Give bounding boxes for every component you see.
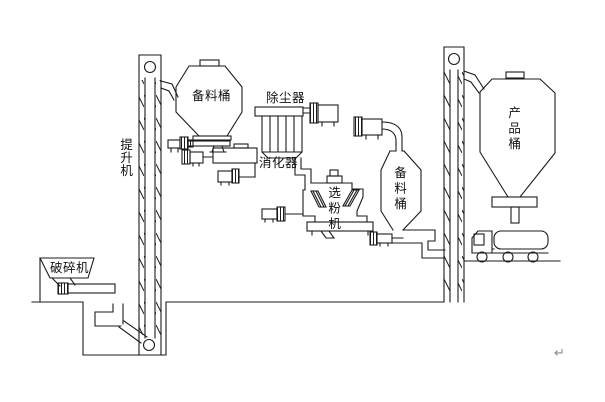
dust-collector-shape <box>255 103 338 190</box>
label-elevator-left: 提升机 <box>119 138 132 177</box>
label-stock-bin-middle: 备料桶 <box>393 166 406 213</box>
label-stock-bin-left: 备料桶 <box>192 89 231 102</box>
feeder-motor-icon <box>168 137 230 152</box>
elevator-left-shape <box>139 55 178 355</box>
digester-shape <box>182 144 257 185</box>
label-digester: 消化器 <box>259 156 298 169</box>
elevator-right-shape <box>444 47 484 302</box>
diagram-line-art <box>0 0 605 402</box>
label-product-bin: 产品桶 <box>507 106 520 153</box>
ground-lines <box>32 261 560 355</box>
truck-icon <box>472 231 548 262</box>
label-crusher: 破碎机 <box>50 261 89 274</box>
label-separator: 选粉机 <box>327 186 340 233</box>
paragraph-return-mark: ↵ <box>554 346 565 361</box>
diagram-canvas: 备料桶 除尘器 消化器 提升机 破碎机 选粉机 备料桶 产品桶 ↵ <box>0 0 605 402</box>
label-dust-collector: 除尘器 <box>266 91 305 104</box>
separator-shape <box>262 170 373 238</box>
